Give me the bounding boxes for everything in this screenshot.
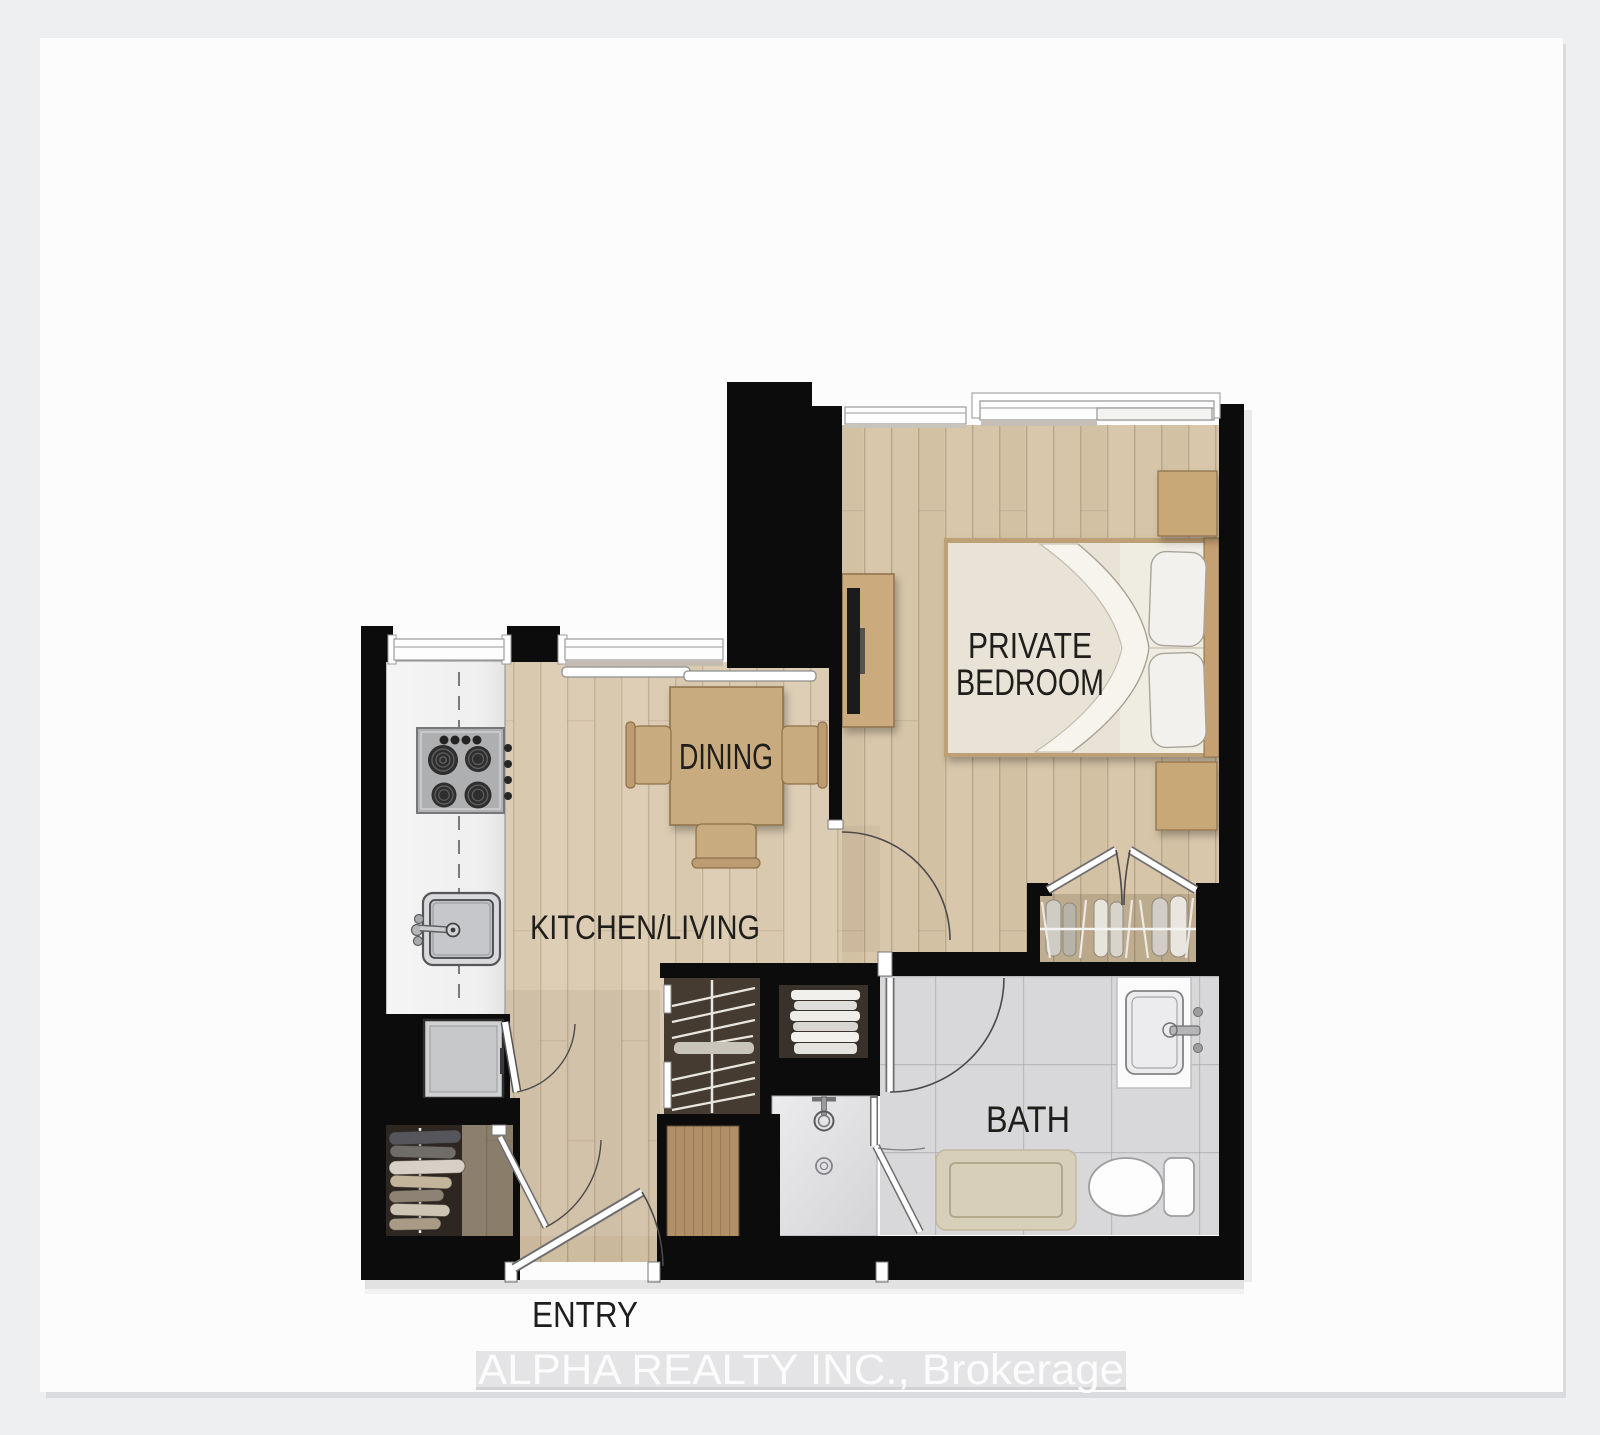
svg-text:ALPHA REALTY INC., Brokerage: ALPHA REALTY INC., Brokerage (478, 1346, 1124, 1394)
svg-text:PRIVATE: PRIVATE (968, 625, 1092, 666)
svg-text:ENTRY: ENTRY (532, 1294, 638, 1335)
svg-text:DINING: DINING (679, 736, 773, 777)
svg-text:BATH: BATH (986, 1099, 1070, 1140)
svg-text:BEDROOM: BEDROOM (956, 662, 1104, 703)
svg-text:KITCHEN/LIVING: KITCHEN/LIVING (530, 909, 760, 947)
